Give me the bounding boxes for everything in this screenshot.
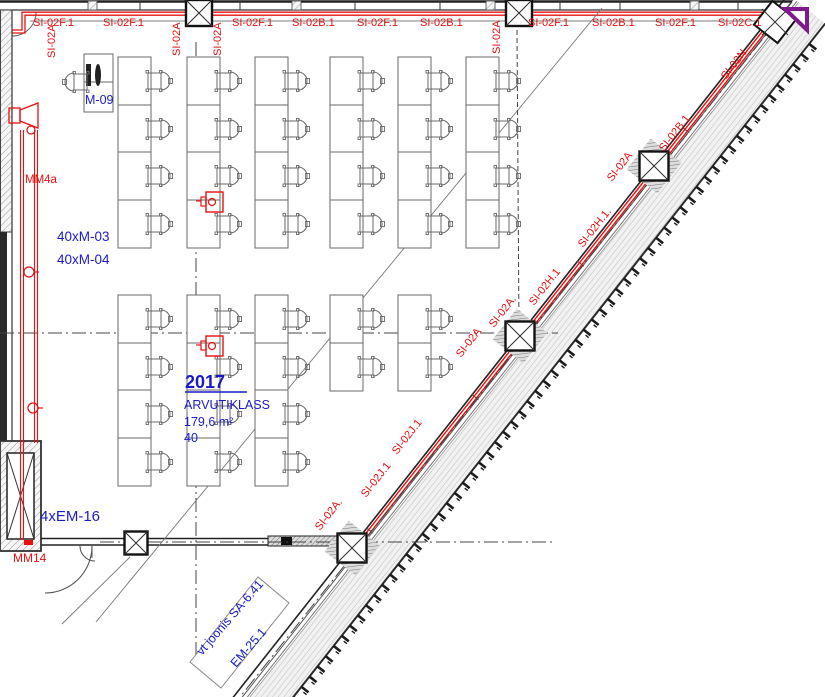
door-swing-double bbox=[45, 546, 95, 593]
desk bbox=[118, 105, 151, 153]
desk bbox=[255, 57, 288, 105]
desk bbox=[466, 57, 499, 105]
equipment-label: M-09 bbox=[85, 93, 114, 107]
desk bbox=[398, 105, 431, 153]
si-label-diagonal: SI-02J.1 bbox=[390, 417, 425, 457]
desk bbox=[187, 152, 220, 200]
desk bbox=[466, 200, 499, 248]
left-wall bbox=[0, 10, 12, 443]
desk bbox=[118, 295, 151, 343]
desk bbox=[398, 57, 431, 105]
si-label: SI-02F.1 bbox=[655, 17, 696, 29]
desk bbox=[118, 390, 151, 438]
floor-plan-drawing: SI-02F.1SI-02F.1SI-02F.1SI-02B.1SI-02F.1… bbox=[0, 0, 825, 697]
desk bbox=[330, 343, 363, 391]
desk bbox=[187, 105, 220, 153]
si-label: SI-02F.1 bbox=[103, 17, 144, 29]
room-number: 2017 bbox=[185, 372, 225, 392]
si-label: SI-02F.1 bbox=[232, 17, 273, 29]
desk bbox=[187, 200, 220, 248]
desk bbox=[255, 152, 288, 200]
desk bbox=[255, 105, 288, 153]
desk bbox=[255, 295, 288, 343]
desk bbox=[398, 295, 431, 343]
desk bbox=[466, 105, 499, 153]
si-label: SI-02B.1 bbox=[292, 17, 335, 29]
equipment-label: 40xM-04 bbox=[57, 252, 110, 267]
room-capacity: 40 bbox=[184, 431, 198, 445]
equipment-label: 4xEM-16 bbox=[40, 508, 100, 525]
desk bbox=[330, 152, 363, 200]
desk bbox=[255, 438, 288, 486]
si-label: SI-02B.1 bbox=[592, 17, 635, 29]
desk bbox=[398, 343, 431, 391]
desk bbox=[118, 343, 151, 391]
si-label: SI-02F.1 bbox=[528, 17, 569, 29]
column bbox=[125, 532, 148, 555]
room-area: 179,6 m² bbox=[184, 415, 233, 429]
desk bbox=[255, 200, 288, 248]
room-name: ARVUTIKLASS bbox=[184, 398, 270, 412]
si-label-diagonal: SI-02A bbox=[454, 325, 485, 359]
bottom-wall bbox=[41, 536, 346, 546]
desk bbox=[466, 152, 499, 200]
outlet-icon bbox=[24, 267, 39, 277]
si-label-vertical: SI-02A bbox=[171, 22, 183, 56]
desk bbox=[118, 200, 151, 248]
si-label-diagonal: SI-02J.1 bbox=[359, 460, 394, 500]
si-label: SI-02F.1 bbox=[357, 17, 398, 29]
si-label-vertical: SI-02A bbox=[491, 20, 503, 54]
floor-plan-canvas: SI-02F.1SI-02F.1SI-02F.1SI-02B.1SI-02F.1… bbox=[0, 0, 825, 697]
equipment-label: 40xM-03 bbox=[57, 229, 110, 244]
si-label-vertical: SI-02A bbox=[212, 22, 224, 56]
mm14-device bbox=[24, 540, 33, 545]
desk bbox=[330, 57, 363, 105]
desk bbox=[187, 57, 220, 105]
wall-tag-label: MM14 bbox=[13, 551, 47, 565]
desk bbox=[255, 343, 288, 391]
desk bbox=[398, 200, 431, 248]
column bbox=[186, 0, 212, 26]
outlet-icon bbox=[28, 403, 43, 413]
si-label: SI-02C.1 bbox=[718, 17, 761, 29]
speaker-icon bbox=[9, 103, 38, 134]
desk bbox=[330, 105, 363, 153]
wall-tag-label: MM4a bbox=[25, 174, 58, 186]
si-label: SI-02B.1 bbox=[420, 17, 463, 29]
desk bbox=[118, 438, 151, 486]
si-label-diagonal: SI-02A. bbox=[313, 497, 345, 533]
desk bbox=[398, 152, 431, 200]
si-label-vertical: SI-02A bbox=[46, 24, 58, 58]
desk bbox=[118, 152, 151, 200]
desk bbox=[118, 57, 151, 105]
desk bbox=[187, 438, 220, 486]
desk bbox=[330, 295, 363, 343]
desk bbox=[330, 200, 363, 248]
